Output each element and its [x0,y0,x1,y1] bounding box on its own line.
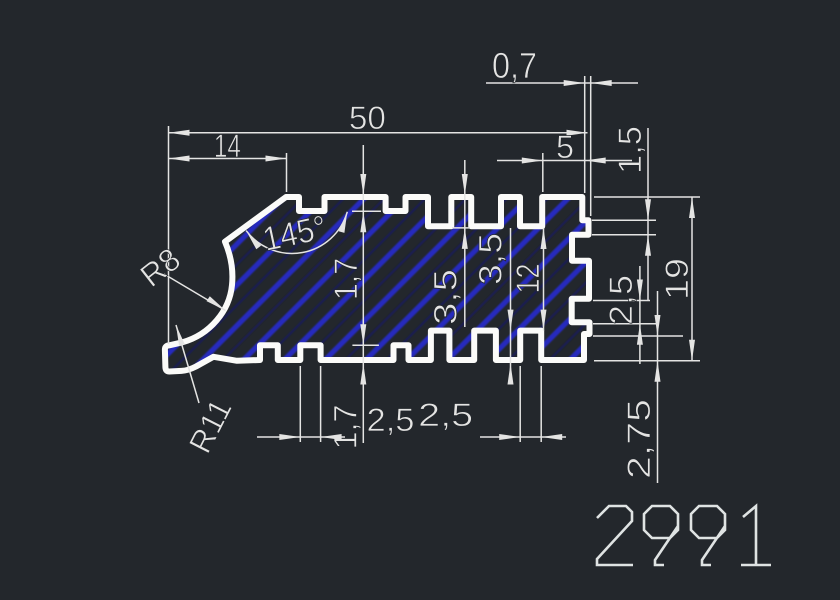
svg-text:1,7: 1,7 [328,405,364,450]
svg-text:14: 14 [214,128,241,164]
svg-text:2,75: 2,75 [621,399,657,479]
svg-text:2,5: 2,5 [418,397,473,433]
svg-text:5: 5 [556,129,574,165]
svg-text:2,5: 2,5 [603,275,639,325]
svg-text:3,5: 3,5 [428,269,464,325]
svg-text:0,7: 0,7 [492,45,537,86]
svg-text:12: 12 [510,264,546,294]
svg-text:2,5: 2,5 [367,402,415,438]
svg-text:19: 19 [659,258,695,300]
svg-text:3,5: 3,5 [473,233,509,285]
svg-text:50: 50 [349,100,386,136]
svg-text:1,7: 1,7 [328,258,364,300]
svg-text:1,5: 1,5 [612,126,648,174]
